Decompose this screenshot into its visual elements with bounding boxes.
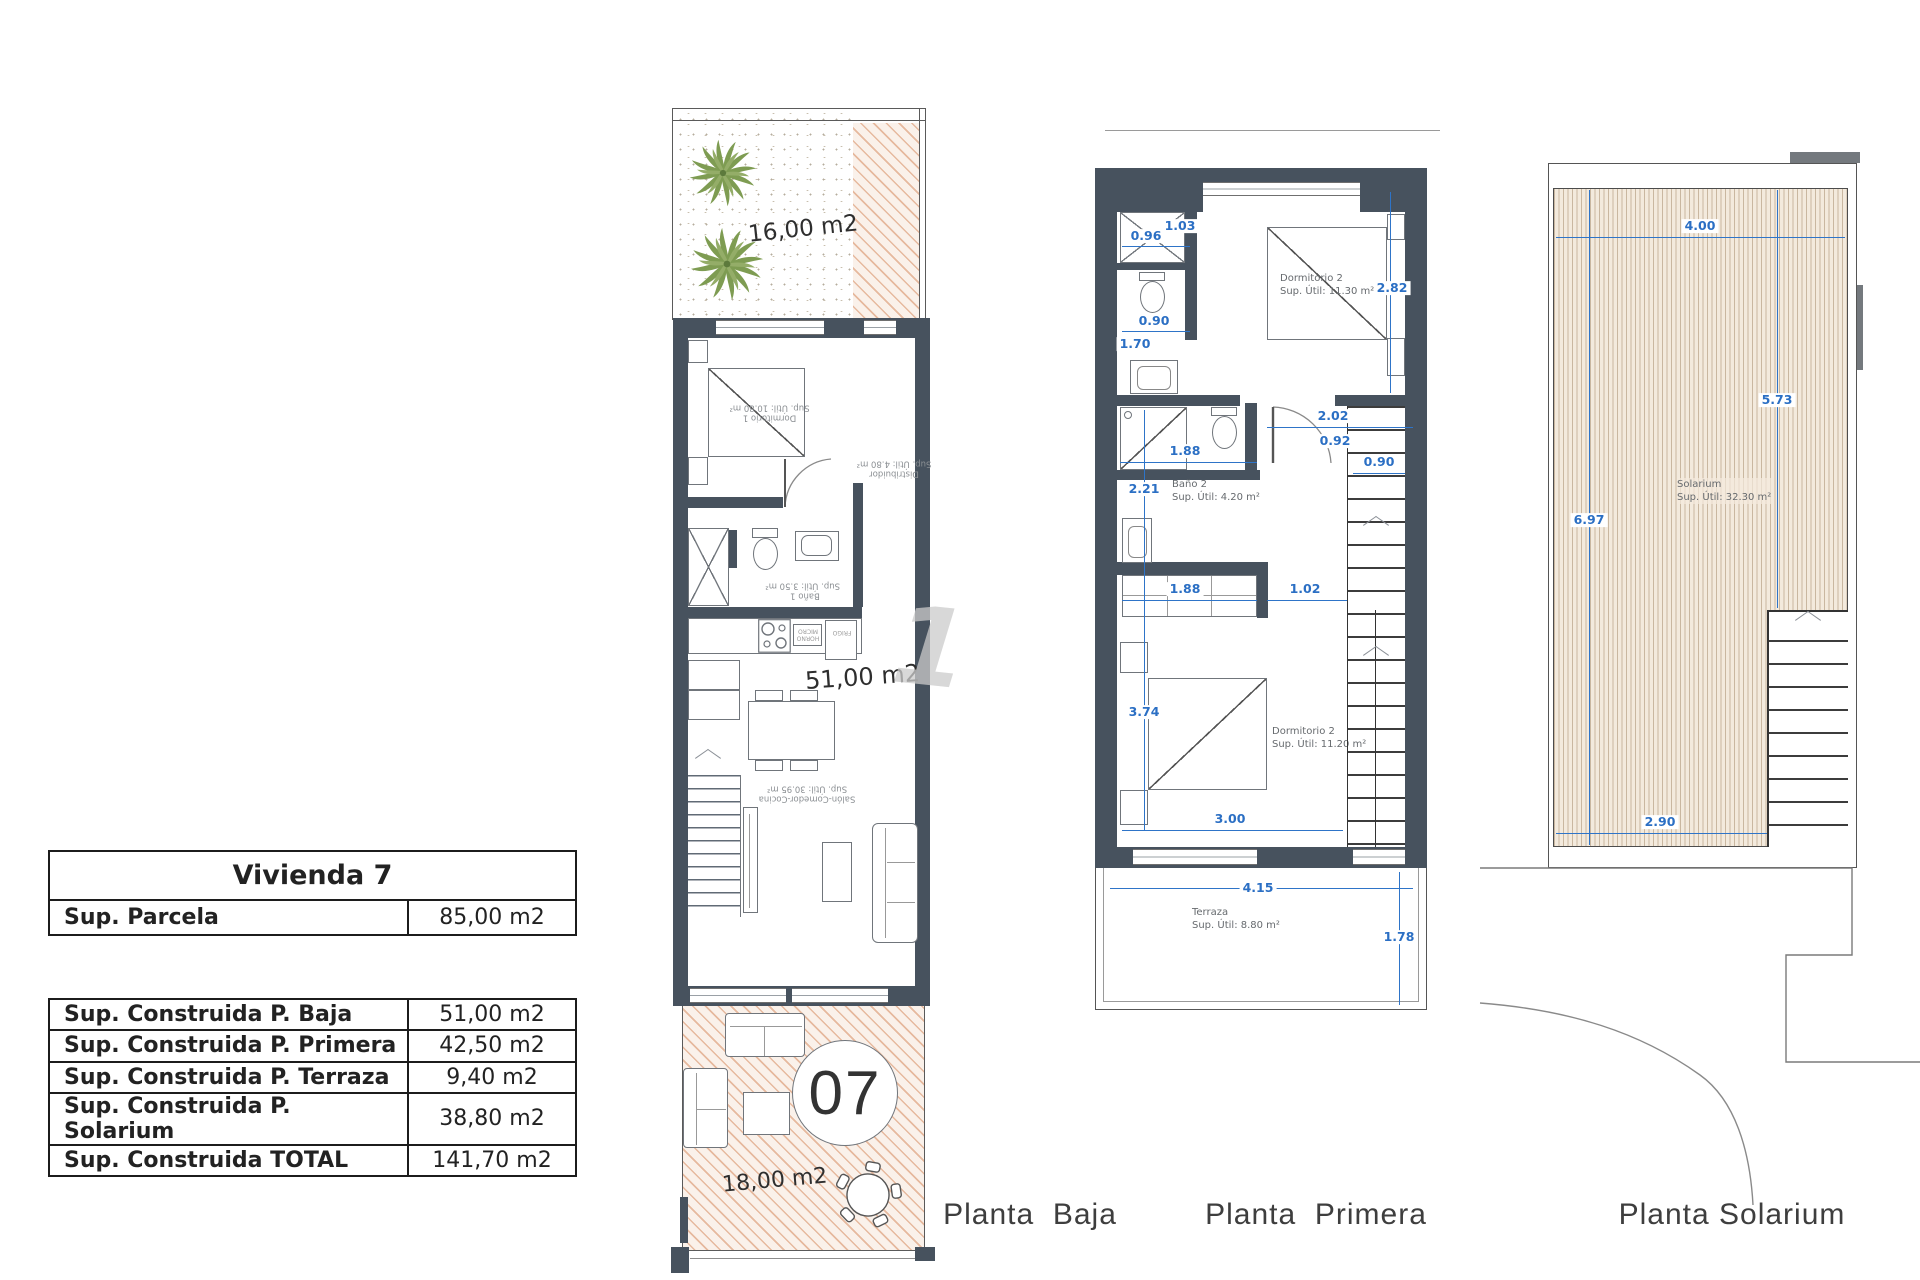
toilet [1140, 281, 1165, 313]
window [864, 320, 896, 335]
shower [688, 528, 729, 606]
window [716, 320, 824, 335]
nightstand [688, 457, 708, 485]
dining-table [748, 701, 835, 760]
dining-chair [790, 690, 818, 701]
dining-chair [790, 760, 818, 771]
parcel-label: Sup. Parcela [50, 901, 409, 934]
table-row: Sup. Construida P. Baja 51,00 m2 [50, 1000, 575, 1029]
stairs-up-arrow [1795, 620, 1821, 633]
bed [1148, 678, 1267, 790]
stove-icon [758, 619, 791, 653]
dim-label: 4.00 [1682, 219, 1719, 233]
dim-label: 2.21 [1126, 482, 1163, 496]
toilet-tank [752, 528, 778, 538]
side-table [743, 1092, 790, 1135]
floorplan-sheet: Vivienda 7 Sup. Parcela 85,00 m2 Sup. Co… [0, 0, 1920, 1280]
palm-tree-icon [687, 137, 759, 209]
toilet [753, 538, 778, 570]
caption-planta-primera: Planta Primera [1205, 1198, 1427, 1232]
stairs-closet [688, 660, 740, 690]
row-label: Sup. Construida P. Baja [50, 1000, 409, 1029]
dim-label: 1.03 [1162, 219, 1199, 233]
oven-micro-unit: HORNO MICRO [793, 624, 822, 646]
row-value: 141,70 m2 [409, 1146, 575, 1175]
garden-side-hatch [853, 123, 919, 320]
dining-chair [755, 690, 783, 701]
toilet-tank [1211, 407, 1237, 416]
room-label-dormitorio2: Dormitorio 2Sup. Útil: 11.30 m² [1280, 272, 1374, 298]
table-row: Sup. Construida P. Terraza 9,40 m2 [50, 1061, 575, 1092]
dim-label: 1.70 [1117, 337, 1154, 351]
dim-label: 0.90 [1136, 314, 1173, 328]
dwelling-title: Vivienda 7 [50, 852, 575, 901]
sink-basin [801, 535, 832, 556]
toilet [1212, 416, 1237, 449]
dim-label: 1.88 [1167, 582, 1204, 596]
row-value: 42,50 m2 [409, 1031, 575, 1060]
built-areas-table: Sup. Construida P. Baja 51,00 m2 Sup. Co… [48, 998, 577, 1177]
dim-label: 2.90 [1642, 815, 1679, 829]
solarium-stairwell [1767, 610, 1848, 847]
outdoor-sofa [725, 1013, 805, 1057]
watermark: 1 [888, 591, 974, 706]
tv-bench [743, 807, 758, 913]
stairs-up-arrow [1363, 525, 1389, 538]
unit-number-circle: 07 [792, 1040, 898, 1146]
dim-label: 5.73 [1759, 393, 1796, 407]
dining-chair [755, 760, 783, 771]
row-label: Sup. Construida P. Solarium [50, 1094, 409, 1144]
stairs-closet [688, 690, 740, 720]
stairs-ground-floor [688, 775, 741, 917]
dim-label: 3.74 [1126, 705, 1163, 719]
row-label: Sup. Construida P. Terraza [50, 1063, 409, 1092]
stairs-up-arrow [1363, 655, 1389, 668]
parcel-value: 85,00 m2 [409, 901, 575, 934]
unit-number: 07 [809, 1058, 882, 1129]
caption-planta-solarium: Planta Solarium [1619, 1198, 1846, 1232]
room-label-bano2: Baño 2Sup. Útil: 4.20 m² [1172, 478, 1260, 504]
dim-label: 3.00 [1212, 812, 1249, 826]
sink [1122, 518, 1152, 563]
room-label-salon: Salón-Comedor-CocinaSup. Útil: 30.95 m² [752, 783, 862, 803]
dim-label: 6.97 [1571, 513, 1608, 527]
round-table-with-chairs [834, 1161, 902, 1229]
nightstand [688, 340, 708, 363]
room-label-distribuidor: DistribuidorSup. Útil: 4.80 m² [848, 458, 940, 478]
caption-planta-baja: Planta Baja [943, 1198, 1117, 1232]
dim-label: 1.02 [1287, 582, 1324, 596]
row-value: 9,40 m2 [409, 1063, 575, 1092]
dim-label: 1.88 [1167, 444, 1204, 458]
window [1353, 849, 1405, 865]
room-label-bano1: Baño 1Sup. Útil: 3.50 m² [770, 580, 840, 600]
row-value: 51,00 m2 [409, 1000, 575, 1029]
dim-label: 1.78 [1381, 930, 1418, 944]
dim-label: 0.90 [1361, 455, 1398, 469]
dim-label: 0.96 [1128, 229, 1165, 243]
door-arc [783, 455, 833, 507]
dim-label: 0.92 [1317, 434, 1354, 448]
dim-label: 4.15 [1240, 881, 1277, 895]
table-row: Sup. Construida P. Primera 42,50 m2 [50, 1029, 575, 1060]
room-label-solarium: SolariumSup. Útil: 32.30 m² [1677, 478, 1771, 504]
window [1133, 849, 1257, 865]
room-label-terraza: TerrazaSup. Útil: 8.80 m² [1192, 906, 1280, 932]
fridge: FRIGO [825, 620, 857, 660]
coffee-table [822, 842, 852, 902]
room-label-dormitorio1: Dormitorio 1Sup. Útil: 10.80 m² [722, 402, 817, 422]
table-row: Sup. Construida TOTAL 141,70 m2 [50, 1144, 575, 1175]
toilet-tank [1139, 272, 1165, 281]
stairs-up-arrow [695, 758, 721, 771]
outdoor-sofa [683, 1068, 728, 1148]
row-label: Sup. Construida P. Primera [50, 1031, 409, 1060]
sofa [872, 823, 918, 943]
dim-label: 2.82 [1374, 281, 1411, 295]
row-value: 38,80 m2 [409, 1094, 575, 1144]
table-row: Sup. Construida P. Solarium 38,80 m2 [50, 1092, 575, 1144]
row-label: Sup. Construida TOTAL [50, 1146, 409, 1175]
sink [1130, 360, 1178, 394]
shower [1120, 407, 1187, 470]
window [1203, 182, 1360, 196]
parcel-table: Vivienda 7 Sup. Parcela 85,00 m2 [48, 850, 577, 936]
dim-label: 2.02 [1315, 409, 1352, 423]
